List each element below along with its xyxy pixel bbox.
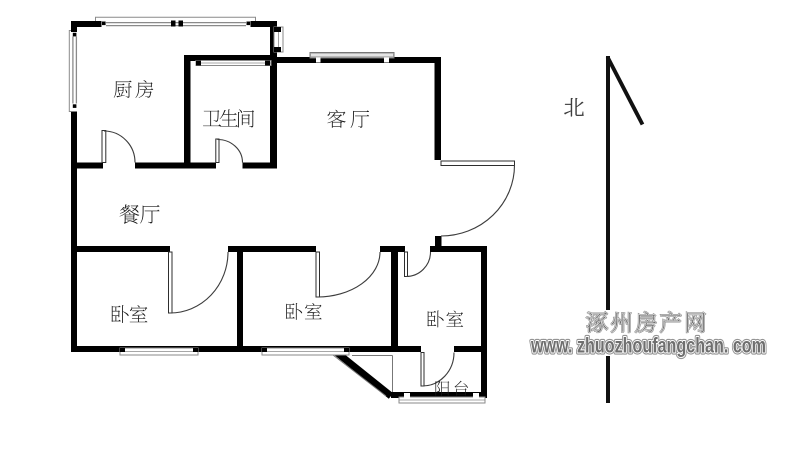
svg-text:www. zhuozhoufangchan. com: www. zhuozhoufangchan. com [530, 335, 766, 358]
